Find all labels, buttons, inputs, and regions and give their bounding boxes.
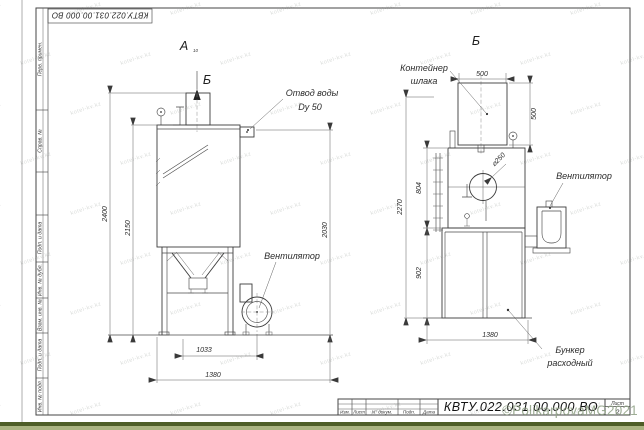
dim-2270: 2270 xyxy=(397,199,404,216)
front-baffle xyxy=(163,145,208,174)
section-fan-base xyxy=(533,248,570,253)
section-view-title-b: Б xyxy=(472,34,480,48)
front-chimney xyxy=(186,93,210,125)
front-view: Отвод воды Dy 50 Вентилятор 2400 2150 xyxy=(102,87,339,383)
section-fan xyxy=(525,201,570,253)
section-dimensions: 500 500 804 902 2270 1380 xyxy=(397,71,538,344)
dim-500-width: 500 xyxy=(476,71,488,78)
copyright-watermark: ©PolikarpovaMG2021 xyxy=(502,403,642,418)
title-col-dokum: N° докум. xyxy=(372,410,392,415)
dim-2400: 2400 xyxy=(102,206,109,223)
section-body xyxy=(448,148,525,228)
section-fan-duct xyxy=(525,236,537,247)
title-col-list: Лист xyxy=(352,410,365,415)
dim-804: 804 xyxy=(416,182,423,194)
frame-label-sprav-no: Справ. № xyxy=(38,129,44,153)
dim-2030: 2030 xyxy=(322,222,329,239)
frame-label-perv-primen: Перв. примен. xyxy=(38,42,44,76)
section-hopper-box xyxy=(442,228,525,318)
title-col-izm: Изм. xyxy=(340,410,350,415)
dim-1380-section: 1380 xyxy=(482,332,498,339)
hopper-label-line1: Бункер xyxy=(555,345,584,355)
dim-2150: 2150 xyxy=(125,220,132,237)
view-letter-a: А xyxy=(179,39,188,53)
dim-500-height: 500 xyxy=(531,108,538,120)
slag-container-label-line1: Контейнер xyxy=(400,63,448,73)
frame-label-podp-data-1: Подп. и дата xyxy=(38,222,44,255)
section-view: Контейнер шлака ⌀250 Вентилятор Бункер р… xyxy=(397,63,612,368)
front-hopper xyxy=(172,253,224,293)
dim-inlet-diameter: ⌀250 xyxy=(491,152,507,168)
dim-1380-front: 1380 xyxy=(205,372,221,379)
section-callout-fan: Вентилятор xyxy=(549,171,612,209)
dim-1033: 1033 xyxy=(196,347,212,354)
drawing-sheet: kotel-kv.kzkotel-kv.kzkotel-kv.kzkotel-k… xyxy=(0,0,644,430)
bottom-green-bar-light xyxy=(0,426,644,430)
frame-label-inv-dubl: Инв. № дубл. xyxy=(38,264,44,296)
front-callout-water-drain: Отвод воды Dy 50 xyxy=(247,88,339,131)
front-dimensions: 2400 2150 2030 1033 1380 xyxy=(102,93,333,383)
slag-container-label-line2: шлака xyxy=(411,76,438,86)
section-internal-fittings xyxy=(462,184,486,226)
front-fan xyxy=(240,284,274,335)
section-callout-container: Контейнер шлака xyxy=(400,63,488,115)
front-pipe-bracket xyxy=(173,107,184,125)
front-fan-label: Вентилятор xyxy=(264,251,320,261)
frame-column-labels: Перв. примен. Справ. № Подп. и дата Инв.… xyxy=(38,42,44,412)
hopper-label-line2: расходный xyxy=(546,358,592,368)
front-support-frame xyxy=(159,247,235,335)
front-callout-fan: Вентилятор xyxy=(259,251,320,308)
top-stamp-designation: КВТУ.022.031.00.000 ВО xyxy=(52,11,149,20)
dim-902: 902 xyxy=(416,267,423,279)
water-drain-label-line1: Отвод воды xyxy=(286,88,339,98)
section-mark-b: Б xyxy=(203,73,211,87)
section-fan-label: Вентилятор xyxy=(556,171,612,181)
section-fan-housing xyxy=(537,207,566,248)
front-fan-duct xyxy=(240,284,252,302)
section-callout-diameter: ⌀250 xyxy=(491,152,507,177)
technical-drawing: Перв. примен. Справ. № Подп. и дата Инв.… xyxy=(0,0,644,430)
frame-label-inv-podl: Инв. № подл. xyxy=(38,380,44,412)
frame-label-podp-data-2: Подп. и дата xyxy=(38,339,44,372)
top-stamp: КВТУ.022.031.00.000 ВО xyxy=(48,9,152,23)
title-col-podp: Подп. xyxy=(403,410,415,415)
section-slag-container xyxy=(458,83,507,145)
sheet-frame xyxy=(22,0,630,422)
view-letter-a-subscript: 10 xyxy=(193,48,199,53)
frame-label-vzam-inv: Взам. инв. № xyxy=(38,299,44,331)
section-ladder xyxy=(433,153,443,232)
section-left-stub xyxy=(450,131,455,148)
front-body xyxy=(157,125,240,247)
title-col-data: Дата xyxy=(422,410,436,415)
water-drain-label-line2: Dy 50 xyxy=(298,102,322,112)
